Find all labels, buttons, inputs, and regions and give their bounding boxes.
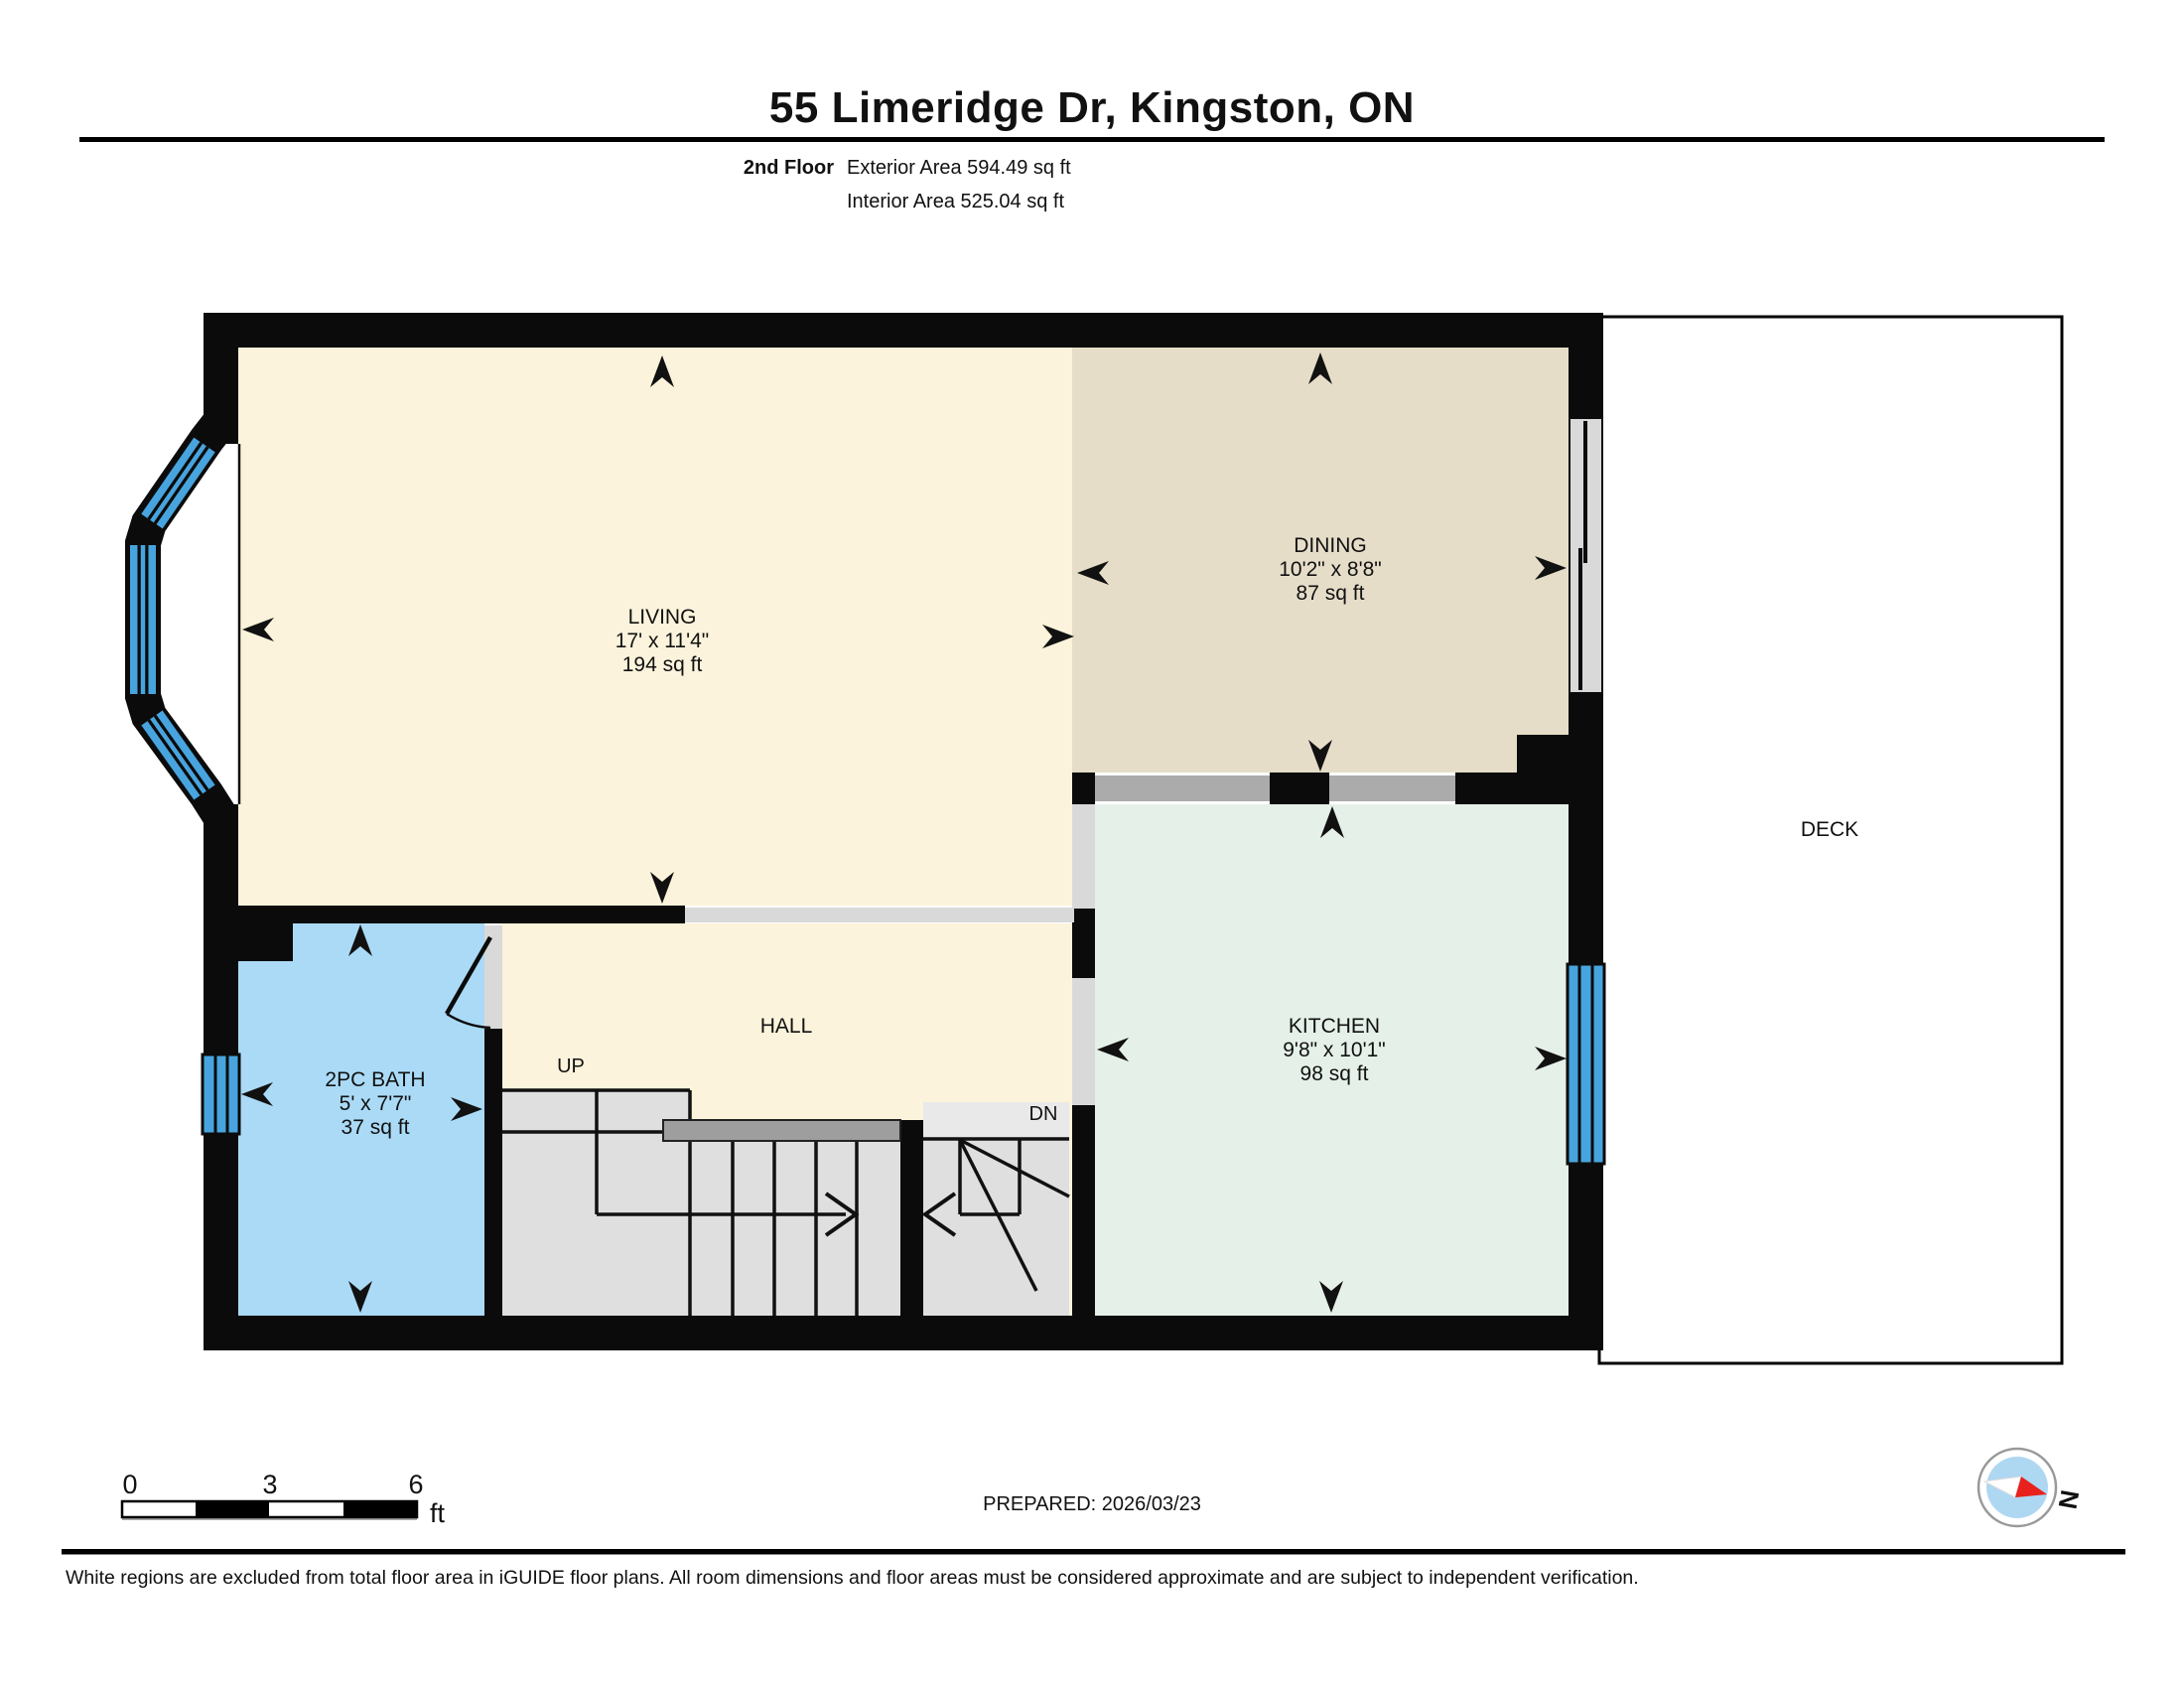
dining-area: 87 sq ft xyxy=(1297,582,1365,605)
stair-handrail xyxy=(663,1120,900,1141)
stairs-up-label: UP xyxy=(557,1055,585,1077)
deck-label: DECK xyxy=(1801,818,1858,841)
bath-window xyxy=(203,1055,239,1134)
floor-plan-canvas: LIVING 17' x 11'4" 194 sq ft DINING 10'2… xyxy=(0,0,2184,1688)
hall-label: HALL xyxy=(760,1015,813,1038)
bath-dims: 5' x 7'7" xyxy=(340,1092,412,1115)
counter-right xyxy=(1329,775,1455,801)
living-kitchen-opening xyxy=(1072,804,1095,909)
kitchen-label: KITCHEN xyxy=(1289,1015,1380,1038)
counter-left xyxy=(1095,775,1270,801)
dining-label: DINING xyxy=(1294,534,1367,557)
sliding-door xyxy=(1570,419,1601,692)
prepared-date: PREPARED: 2026/03/23 xyxy=(0,1493,2184,1516)
living-label: LIVING xyxy=(628,606,697,629)
bath-area: 37 sq ft xyxy=(341,1116,410,1139)
bay-window xyxy=(143,422,239,816)
bath-label: 2PC BATH xyxy=(325,1068,425,1091)
kitchen-window xyxy=(1568,964,1604,1164)
kitchen-area: 98 sq ft xyxy=(1300,1062,1369,1085)
disclaimer-text: White regions are excluded from total fl… xyxy=(66,1567,2130,1590)
living-area: 194 sq ft xyxy=(622,653,703,676)
living-dims: 17' x 11'4" xyxy=(615,630,709,652)
kitchen-dims: 9'8" x 10'1" xyxy=(1283,1039,1386,1061)
dining-dims: 10'2" x 8'8" xyxy=(1279,558,1382,581)
kitchen-doorway xyxy=(1072,978,1095,1105)
living-hall-opening xyxy=(685,908,1074,922)
stairs-down-label: DN xyxy=(1029,1103,1058,1125)
footer-divider xyxy=(62,1549,2125,1555)
